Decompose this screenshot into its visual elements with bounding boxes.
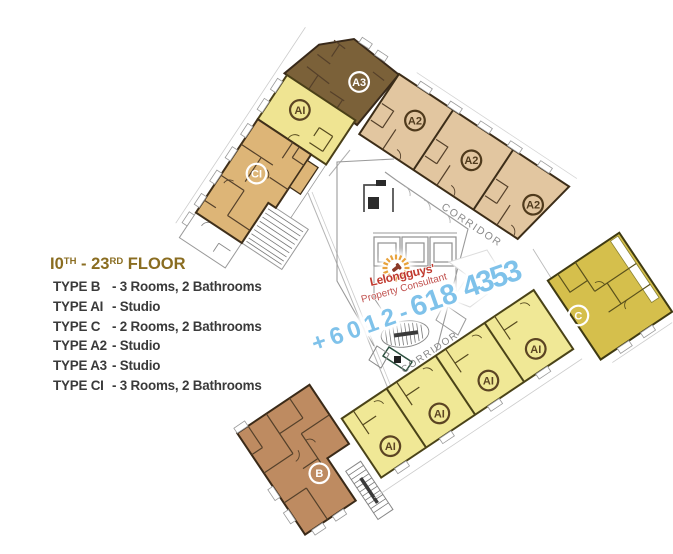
svg-text:AI: AI xyxy=(434,408,445,420)
svg-text:AI: AI xyxy=(385,441,396,453)
svg-text:TYPE CI- 3 Rooms, 2 Bathrooms: TYPE CI- 3 Rooms, 2 Bathrooms xyxy=(53,378,262,393)
svg-text:TYPE A2- Studio: TYPE A2- Studio xyxy=(53,338,160,353)
svg-text:A3: A3 xyxy=(352,77,366,89)
svg-text:A2: A2 xyxy=(464,155,478,167)
svg-text:AI: AI xyxy=(483,375,494,387)
svg-text:C: C xyxy=(574,310,582,322)
svg-text:TYPE B- 3 Rooms, 2 Bathrooms: TYPE B- 3 Rooms, 2 Bathrooms xyxy=(53,279,262,294)
svg-text:A2: A2 xyxy=(526,200,540,212)
svg-text:B: B xyxy=(315,468,323,480)
svg-text:AI: AI xyxy=(294,105,305,117)
svg-text:CI: CI xyxy=(251,168,262,180)
svg-text:TYPE A3- Studio: TYPE A3- Studio xyxy=(53,358,160,373)
svg-text:A2: A2 xyxy=(408,115,422,127)
svg-text:AI: AI xyxy=(530,344,541,356)
svg-text:TYPE C- 2 Rooms, 2 Bathrooms: TYPE C- 2 Rooms, 2 Bathrooms xyxy=(53,319,262,334)
